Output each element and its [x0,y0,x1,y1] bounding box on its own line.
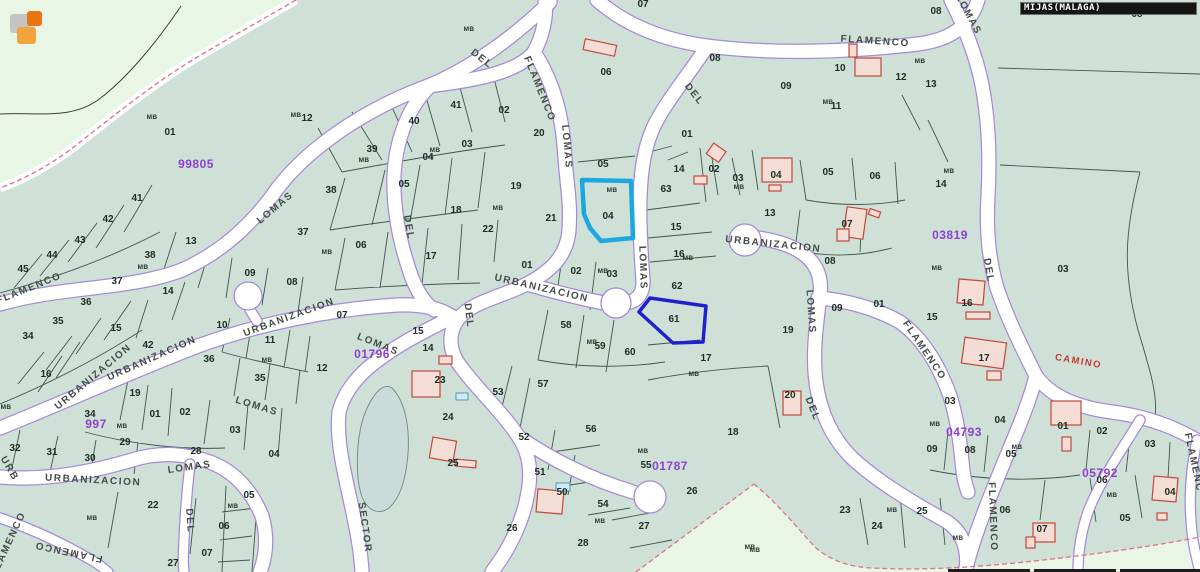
parcel-number: 08 [930,6,942,17]
parcel-number: 28 [577,538,589,549]
parcel-number: 15 [670,222,682,233]
cadastral-zone-code: 03819 [932,228,968,242]
mb-label: MB [1107,492,1118,499]
parcel-number: 13 [185,236,197,247]
parcel-number: 14 [935,179,947,190]
mb-label: MB [683,255,694,262]
building [837,229,849,241]
parcel-number: 41 [450,100,462,111]
swimming-pool [456,393,468,400]
parcel-number: 02 [1096,426,1108,437]
parcel-number: 20 [533,128,545,139]
parcel-number: 63 [660,184,672,195]
parcel-number: 38 [144,250,156,261]
parcel-number: 19 [782,325,794,336]
parcel-number: 06 [600,67,612,78]
building [987,371,1001,380]
parcel-number: 17 [425,251,437,262]
parcel-number: 07 [841,219,853,230]
parcel-number: 01 [164,127,176,138]
parcel-number: 52 [518,432,530,443]
parcel-number: 08 [964,445,976,456]
cadastral-zone-code: 01787 [652,459,688,473]
parcel-number: 31 [46,447,58,458]
parcel-number: 17 [978,353,990,364]
mb-label: MB [1012,444,1023,451]
parcel-number: 58 [560,320,572,331]
parcel-number: 41 [131,193,143,204]
parcel-number: 55 [640,460,652,471]
parcel-number: 37 [111,276,123,287]
parcel-number: 18 [727,427,739,438]
parcel-number: 50 [556,487,568,498]
parcel-number: 51 [534,467,546,478]
parcel-number: 36 [203,354,215,365]
cadastral-map-canvas[interactable]: FLAMENCOLOMASDELFLAMENCOLOMASDELLOMASDEL… [0,0,1200,572]
parcel-number: 39 [366,144,378,155]
parcel-number: 01 [149,409,161,420]
parcel-number: 06 [999,505,1011,516]
parcel-number: 05 [822,167,834,178]
parcel-number: 25 [447,458,459,469]
building [456,459,477,468]
parcel-number: 45 [17,264,29,275]
parcel-number: 42 [142,340,154,351]
road-path [250,310,257,321]
parcel-number: 13 [925,79,937,90]
municipality-bar: MIJAS(MALAGA) [1020,2,1197,15]
mb-label: MB [87,515,98,522]
mb-label: MB [493,205,504,212]
parcel-number: 03 [461,139,473,150]
parcel-number: 05 [597,159,609,170]
building [1026,537,1035,548]
mb-label: MB [464,26,475,33]
cadastral-zone-code: 997 [85,417,107,431]
culdesac-circle [634,481,666,513]
parcel-number: 14 [673,164,685,175]
building [769,185,781,191]
parcel-number: 01 [681,129,693,140]
building [849,44,857,57]
mb-label: MB [359,157,370,164]
parcel-number: 11 [265,335,276,346]
parcel-number: 22 [147,500,159,511]
mb-label: MB [607,187,618,194]
mb-label: MB [638,448,649,455]
parcel-number: 62 [671,281,683,292]
map-viewport[interactable]: FLAMENCOLOMASDELFLAMENCOLOMASDELLOMASDEL… [0,0,1200,572]
parcel-number: 10 [216,320,228,331]
mb-label: MB [887,507,898,514]
parcel-number: 03 [229,425,241,436]
mb-label: MB [138,264,149,271]
mb-label: MB [262,357,273,364]
parcel-number: 16 [40,369,52,380]
parcel-number: 02 [498,105,510,116]
mb-label: MB [944,168,955,175]
mb-label: MB [595,518,606,525]
parcel-number: 03 [1144,439,1156,450]
parcel-number: 34 [22,331,34,342]
parcel-number: 18 [450,205,462,216]
building [1157,513,1167,520]
cadastral-zone-code: 01796 [354,347,390,361]
parcel-number: 25 [916,506,928,517]
parcel-number: 05 [398,179,410,190]
mb-label: MB [117,423,128,430]
mb-label: MB [322,249,333,256]
parcel-number: 04 [770,170,782,181]
parcel-number: 08 [286,277,298,288]
parcel-number: 15 [926,312,938,323]
parcel-number: 60 [624,347,636,358]
parcel-number: 09 [831,303,843,314]
parcel-number: 53 [492,387,504,398]
building [966,312,990,319]
parcel-number: 05 [1119,513,1131,524]
parcel-number: 12 [895,72,907,83]
parcel-number: 26 [506,523,518,534]
parcel-number: 08 [709,53,721,64]
culdesac-circle [601,288,631,318]
parcel-number: 07 [1036,524,1048,535]
parcel-number: 15 [412,326,424,337]
mb-label: MB [932,265,943,272]
parcel-number: 03 [732,173,744,184]
parcel-number: 44 [46,250,58,261]
cadastral-zone-code: 99805 [178,157,214,171]
parcel-number: 56 [585,424,597,435]
parcel-number: 38 [325,185,337,196]
parcel-number: 06 [869,171,881,182]
parcel-number: 04 [1164,487,1176,498]
parcel-number: 09 [244,268,256,279]
parcel-number: 02 [570,266,582,277]
parcel-number: 42 [102,214,114,225]
parcel-number: 10 [834,63,846,74]
parcel-number: 03 [1057,264,1069,275]
mb-label: MB [1,404,12,411]
parcel-number: 08 [824,256,836,267]
parcel-number: 06 [355,240,367,251]
parcel-number: 20 [784,390,796,401]
building [855,58,881,76]
parcel-number: 40 [408,116,420,127]
parcel-number: 35 [52,316,64,327]
mb-label: MB [823,99,834,106]
parcel-number: 15 [110,323,122,334]
parcel-number: 57 [537,379,549,390]
parcel-number: 01 [1057,421,1069,432]
parcel-number: 07 [637,0,649,10]
parcel-number: 22 [482,224,494,235]
parcel-number: 09 [780,81,792,92]
parcel-number: 14 [162,286,174,297]
logo-square-orange [27,11,42,26]
building [1062,437,1071,451]
parcel-number: 12 [301,113,313,124]
mb-label: MB [147,114,158,121]
parcel-number: 29 [119,437,131,448]
mb-label: MB [291,112,302,119]
mb-label: MB [689,371,700,378]
parcel-number: 12 [316,363,328,374]
parcel-number: 36 [80,297,92,308]
parcel-number: 27 [638,521,650,532]
building [439,356,452,364]
mb-label: MB [598,268,609,275]
mb-label: MB [915,58,926,65]
parcel-number: 26 [686,486,698,497]
parcel-number: 32 [9,443,21,454]
mb-label: MB [953,535,964,542]
culdesac-circle [234,282,262,310]
parcel-number: 30 [84,453,96,464]
municipality-label: MIJAS(MALAGA) [1024,3,1101,13]
parcel-number: 24 [442,412,454,423]
parcel-number: 54 [597,499,609,510]
mb-label: MB [228,503,239,510]
parcel-number: 35 [254,373,266,384]
parcel-number: 05 [243,490,255,501]
parcel-number: 14 [422,343,434,354]
street-name-label: DEL [183,508,196,534]
parcel-number: 04 [268,449,280,460]
parcel-number: 07 [201,548,213,559]
mb-label: MB [930,421,941,428]
parcel-number: 37 [297,227,309,238]
mb-label: MB [734,184,745,191]
parcel-number: 13 [764,208,776,219]
parcel-number: 23 [839,505,851,516]
cadastral-zone-code: 04793 [946,425,982,439]
parcel-number: 16 [961,298,973,309]
parcel-number: 04 [602,211,614,222]
parcel-number: 17 [700,353,712,364]
parcel-number: 23 [434,375,446,386]
parcel-number: 19 [129,388,141,399]
parcel-number: 27 [167,558,179,569]
parcel-number: 43 [74,235,86,246]
parcel-number: 09 [926,444,938,455]
parcel-number: 01 [873,299,885,310]
parcel-number: 06 [218,521,230,532]
mb-label: MB [430,147,441,154]
logo-square-amber [17,27,36,44]
street-name-label: LOMAS [636,246,649,290]
parcel-number: 21 [545,213,557,224]
parcel-number: 28 [190,446,202,457]
parcel-number: 19 [510,181,522,192]
cadastral-zone-code: 05792 [1082,466,1118,480]
parcel-number: 24 [871,521,883,532]
parcel-number: 61 [668,314,680,325]
mb-label: MB [750,547,761,554]
building [694,176,707,184]
parcel-number: 04 [994,415,1006,426]
parcel-number: 01 [521,260,533,271]
parcel-number: 02 [179,407,191,418]
parcel-number: 03 [944,396,956,407]
parcel-number: 07 [336,310,348,321]
parcel-number: 02 [708,164,720,175]
mb-label: MB [587,339,598,346]
